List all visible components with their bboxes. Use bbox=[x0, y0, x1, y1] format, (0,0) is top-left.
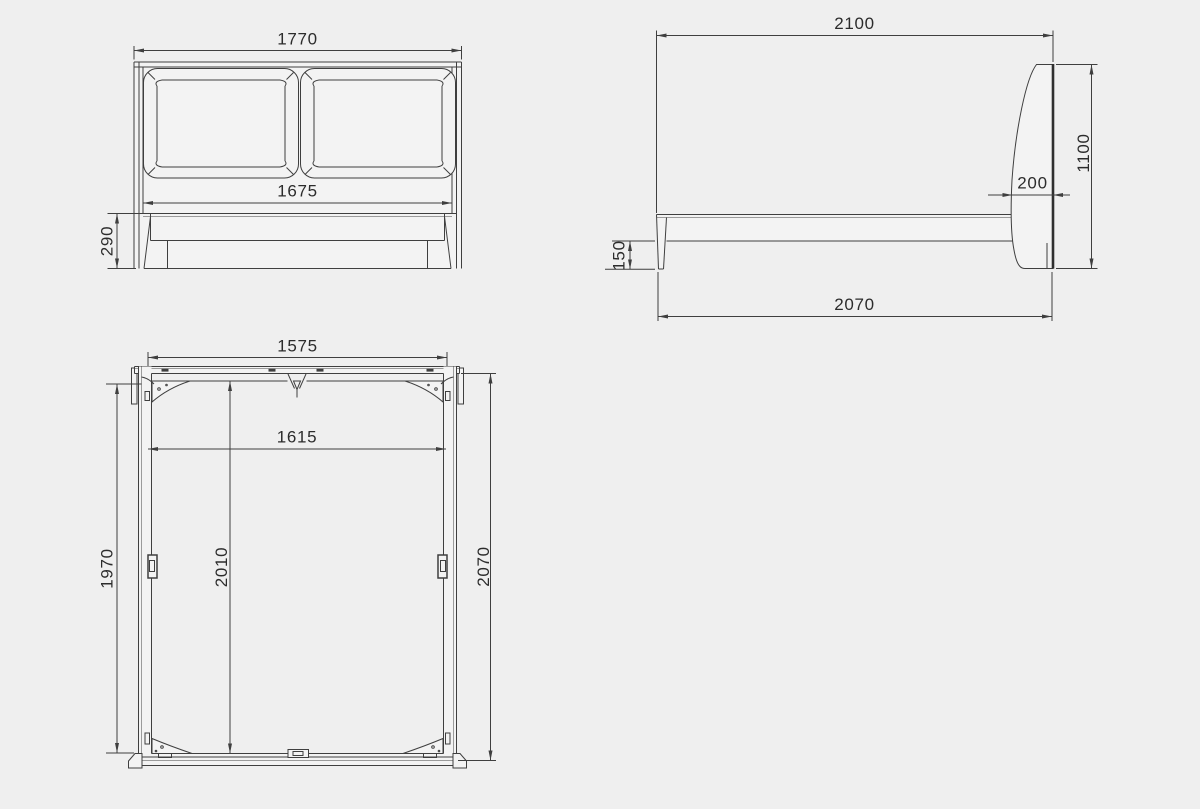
side-dim-base-length-label: 2070 bbox=[834, 295, 875, 314]
front-dim-overall-width: 1770 bbox=[134, 30, 462, 60]
plan-dim-inner-width-label: 1615 bbox=[277, 428, 318, 447]
plan-dim-overall-length-label: 2070 bbox=[474, 546, 493, 587]
front-dim-inner-width-label: 1675 bbox=[277, 182, 318, 201]
bed-technical-drawing: 1770 1675 290 bbox=[0, 0, 1200, 809]
side-dim-headboard-thickness-label: 200 bbox=[1017, 174, 1047, 193]
side-dim-headboard-thickness: 200 bbox=[988, 174, 1070, 196]
plan-dim-overall-length: 2070 bbox=[458, 374, 496, 761]
plan-dim-left-length: 1970 bbox=[98, 384, 142, 753]
plan-side-clip-right bbox=[438, 555, 447, 578]
plan-foot-corner-left bbox=[129, 754, 143, 769]
plan-gusset-bottom-right bbox=[403, 733, 450, 758]
plan-gusset-bottom-left bbox=[145, 733, 192, 758]
side-dim-overall-length-label: 2100 bbox=[834, 14, 875, 33]
headboard-cushion-right bbox=[301, 69, 456, 179]
plan-dim-headboard-width-label: 1575 bbox=[277, 337, 318, 356]
front-view: 1770 1675 290 bbox=[98, 30, 462, 269]
headboard-cushion-left bbox=[144, 69, 299, 179]
side-dim-headboard-height: 1100 bbox=[1056, 65, 1098, 269]
side-rail-fill bbox=[657, 215, 1015, 270]
side-dim-frame-clearance-label: 150 bbox=[610, 240, 629, 270]
side-headboard bbox=[1011, 64, 1053, 269]
plan-headboard-bar bbox=[135, 367, 460, 374]
side-dim-base-length: 2070 bbox=[658, 272, 1052, 321]
plan-dim-headboard-width: 1575 bbox=[148, 337, 447, 367]
plan-dim-left-length-label: 1970 bbox=[98, 548, 117, 589]
plan-view: 1575 1615 1970 2010 2070 bbox=[98, 337, 497, 769]
side-dim-frame-clearance: 150 bbox=[605, 240, 655, 270]
plan-side-rails bbox=[139, 367, 457, 758]
side-view: 2100 1100 200 150 2070 bbox=[605, 14, 1098, 321]
side-dim-headboard-height-label: 1100 bbox=[1074, 133, 1093, 172]
front-dim-overall-width-label: 1770 bbox=[277, 30, 318, 49]
plan-headboard-inner-edge bbox=[152, 374, 443, 398]
drawing-sheet: 1770 1675 290 bbox=[0, 0, 1200, 809]
plan-side-clip-left bbox=[148, 555, 157, 578]
plan-dim-inner-length: 2010 bbox=[212, 381, 231, 754]
plan-center-bracket bbox=[288, 750, 309, 758]
front-dim-rail-height-label: 290 bbox=[98, 226, 117, 256]
side-dim-overall-length: 2100 bbox=[657, 14, 1054, 213]
plan-dim-inner-width: 1615 bbox=[148, 428, 446, 450]
plan-dim-inner-length-label: 2010 bbox=[212, 547, 231, 588]
